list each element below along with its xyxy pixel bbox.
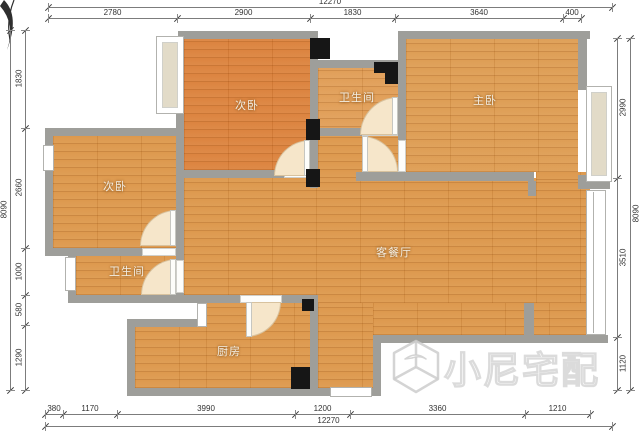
wall: [45, 128, 184, 136]
column: [291, 367, 310, 389]
dimension-value: 1200: [295, 404, 350, 413]
wall: [528, 181, 536, 196]
wall: [45, 248, 142, 256]
cube-logo-icon: [388, 337, 444, 397]
room-label-kitchen: 厨房: [217, 343, 241, 359]
dimension-value: 3510: [619, 237, 628, 277]
dimension-line: [48, 18, 581, 19]
dimension-tick: [21, 128, 30, 129]
window: [593, 192, 594, 333]
column: [302, 299, 314, 311]
wall: [127, 319, 206, 327]
dimension-line: [45, 414, 590, 415]
dimension-line: [25, 30, 26, 390]
dimension-value: 1290: [15, 337, 24, 377]
dimension-value: 1170: [63, 404, 117, 413]
dimension-tick: [21, 390, 30, 391]
dimension-tick: [613, 337, 622, 338]
window-sill: [162, 42, 178, 108]
column: [374, 62, 398, 73]
door-leaf: [362, 136, 368, 172]
dimension-value: 1000: [15, 251, 24, 291]
wall: [176, 108, 184, 260]
dimension-tick: [613, 390, 622, 391]
floor-kitchen: [135, 327, 206, 388]
wall: [127, 319, 135, 396]
watermark-text: 小尼宅配: [444, 340, 600, 394]
bay-window-sill: [591, 92, 607, 176]
door-opening: [142, 248, 176, 256]
dimension-value: 1830: [15, 59, 24, 99]
door-leaf: [170, 210, 176, 246]
dimension-value: 12270: [45, 416, 612, 425]
wall: [398, 31, 406, 140]
window: [197, 303, 207, 327]
wall: [318, 128, 362, 136]
dimension-value: 2780: [48, 8, 177, 17]
dimension-value: 380: [45, 404, 63, 413]
door-opening: [398, 140, 406, 172]
door-leaf: [170, 259, 176, 295]
dimension-value: 3640: [395, 8, 563, 17]
dimension-tick: [581, 14, 582, 23]
dimension-tick: [612, 3, 613, 12]
dimension-tick: [612, 422, 613, 431]
dimension-tick: [626, 38, 635, 39]
dimension-line: [45, 426, 612, 427]
dimension-value: 3360: [350, 404, 525, 413]
watermark: 小尼宅配: [388, 334, 578, 400]
dimension-value: 1830: [310, 8, 395, 17]
room-label-living-dining: 客餐厅: [376, 244, 412, 260]
dimension-value: 2660: [15, 168, 24, 208]
door-leaf: [246, 302, 252, 337]
window: [330, 387, 372, 397]
window: [586, 190, 606, 335]
floor-dining-south: [373, 303, 590, 335]
column: [385, 73, 398, 84]
dimension-value: 8090: [632, 194, 640, 234]
north-arrow-icon: [0, 0, 28, 52]
dimension-line: [10, 30, 11, 390]
column: [310, 38, 330, 59]
wall: [373, 335, 381, 396]
dimension-value: 3990: [117, 404, 295, 413]
room-label-bathroom-left: 卫生间: [109, 263, 145, 279]
wall: [68, 295, 240, 303]
window: [65, 257, 76, 291]
dimension-value: 2990: [619, 88, 628, 128]
dimension-tick: [613, 38, 622, 39]
dimension-value: 1210: [525, 404, 590, 413]
dimension-value: 12270: [48, 0, 612, 6]
dimension-value: 400: [563, 8, 581, 17]
room-label-bedroom-top: 次卧: [235, 97, 259, 113]
dimension-tick: [613, 178, 622, 179]
wall: [356, 172, 534, 181]
wall: [176, 293, 184, 303]
column: [306, 169, 320, 187]
dimension-tick: [21, 30, 30, 31]
dimension-value: 1120: [619, 343, 628, 383]
floor-corridor: [318, 303, 373, 388]
dimension-tick: [6, 390, 15, 391]
door-leaf: [392, 97, 398, 135]
dimension-value: 580: [15, 290, 24, 330]
room-label-master-bedroom: 主卧: [473, 92, 497, 108]
dimension-tick: [21, 248, 30, 249]
wall: [578, 31, 587, 90]
dimension-tick: [6, 30, 15, 31]
dimension-value: 2900: [177, 8, 310, 17]
wall: [178, 31, 318, 39]
column: [306, 119, 320, 140]
wall: [398, 31, 590, 39]
wall: [176, 170, 284, 178]
door-opening: [176, 260, 184, 293]
dimension-tick: [626, 390, 635, 391]
floor-plan-canvas: 次卧 卫生间 主卧 次卧 卫生间 客餐厅 厨房 小尼宅配 12270278029…: [0, 0, 640, 433]
floor-living-dining: [184, 178, 590, 303]
room-label-bathroom-top: 卫生间: [339, 89, 375, 105]
window: [43, 145, 54, 171]
room-label-bedroom-left: 次卧: [103, 178, 127, 194]
dimension-value: 8090: [0, 190, 9, 230]
